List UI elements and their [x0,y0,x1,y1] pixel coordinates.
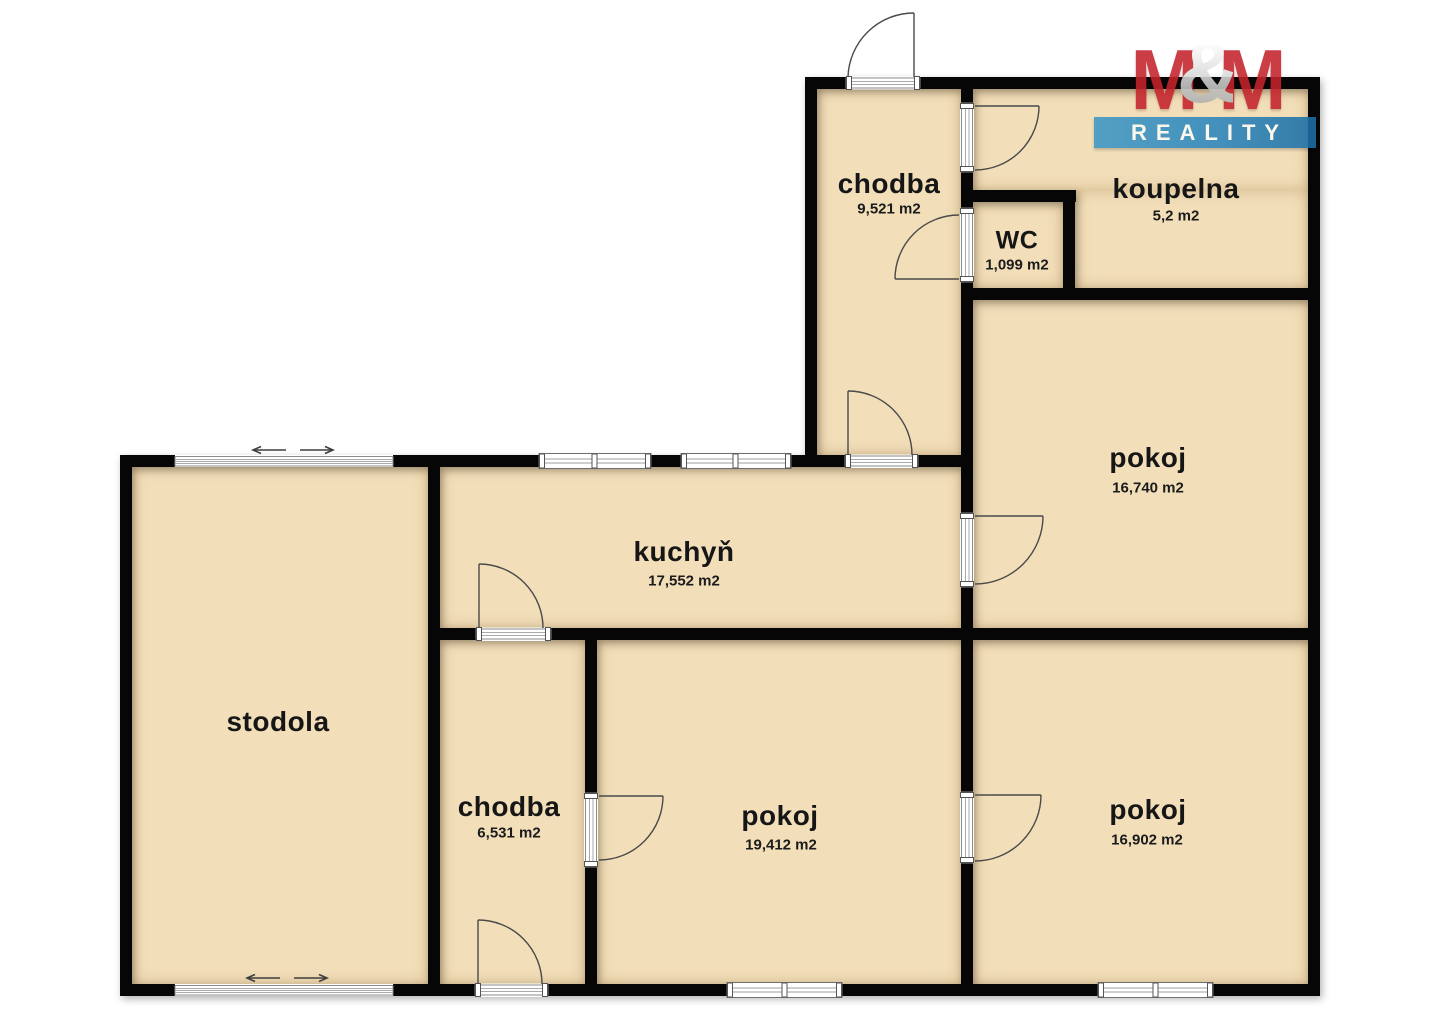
label-pokoj-right: pokoj [1109,794,1186,826]
area-chodba-top: 9,521 m2 [857,201,920,218]
label-stodola: stodola [226,706,329,738]
window-kuchyn-1 [539,454,651,469]
logo-mm-text: M&M [1094,36,1316,116]
wall-outer-right [1308,77,1320,996]
area-koupelna: 5,2 m2 [1153,208,1200,225]
wall-wc-right [1063,190,1075,300]
slide-arrows-icon [247,975,327,982]
wall-wc-top [961,190,1076,202]
label-wc: WC [996,227,1039,256]
door-chodba-kuchyn [845,391,918,468]
wall-lower-horizontal [428,628,1320,640]
area-wc: 1,099 m2 [985,257,1048,274]
wall-outer-left [120,455,132,996]
door-wc [895,208,974,282]
label-pokoj-left: pokoj [741,800,818,832]
area-kuchyn: 17,552 m2 [648,573,720,590]
floor-plan: chodba 9,521 m2 koupelna 5,2 m2 WC 1,099… [0,0,1440,1019]
slide-arrows-icon [253,447,333,454]
area-chodba-bottom: 6,531 m2 [477,825,540,842]
area-pokoj-left: 19,412 m2 [745,837,817,854]
label-chodba-top: chodba [838,168,941,200]
door-koupelna [960,103,1039,172]
window-kuchyn-2 [681,454,791,469]
logo-reality-text: REALITY [1122,117,1288,148]
logo-ampersand: & [1177,30,1234,114]
label-kuchyn: kuchyň [633,536,734,568]
door-chodba-exit [475,920,548,997]
wall-upper-left [805,77,817,467]
sliding-door-bottom [175,975,393,997]
label-koupelna: koupelna [1113,173,1240,205]
door-chodba-pokoj [584,793,663,867]
window-pokoj-right [1098,983,1213,998]
mm-reality-logo: M&M REALITY [1094,36,1316,150]
wall-koupelna-bottom [961,288,1320,300]
label-pokoj-top: pokoj [1109,442,1186,474]
door-entrance [846,13,920,90]
sliding-door-top [175,447,393,468]
area-pokoj-right: 16,902 m2 [1111,832,1183,849]
area-pokoj-top: 16,740 m2 [1112,480,1184,497]
door-pokoj-pokoj [960,792,1041,863]
wall-stodola-right [428,455,440,996]
logo-reality-band: REALITY [1094,117,1316,148]
label-chodba-bottom: chodba [458,791,561,823]
floor-plan-drawing [0,0,1440,1019]
door-kuchyn-pokoj [960,513,1043,587]
door-kuchyn-chodba [476,564,551,641]
window-pokoj-left [727,983,842,998]
